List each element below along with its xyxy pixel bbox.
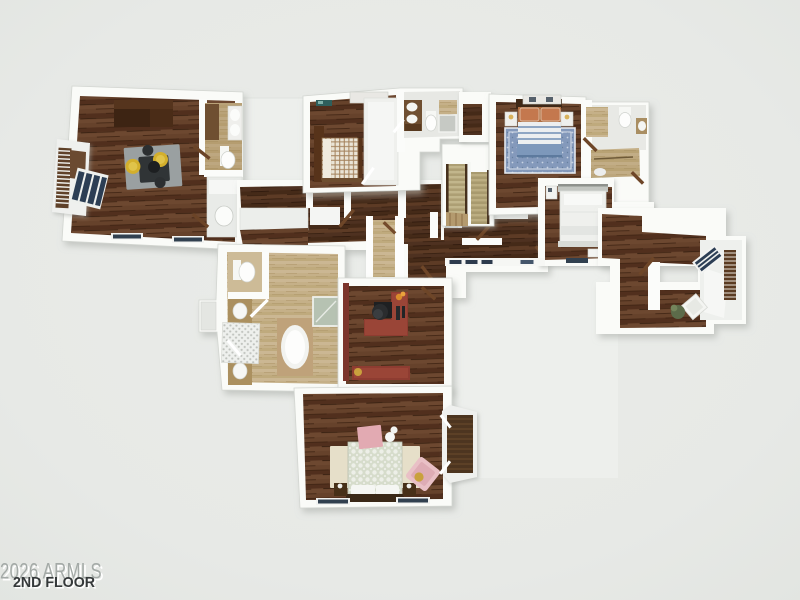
svg-text:2ND FLOOR: 2ND FLOOR	[13, 574, 95, 591]
